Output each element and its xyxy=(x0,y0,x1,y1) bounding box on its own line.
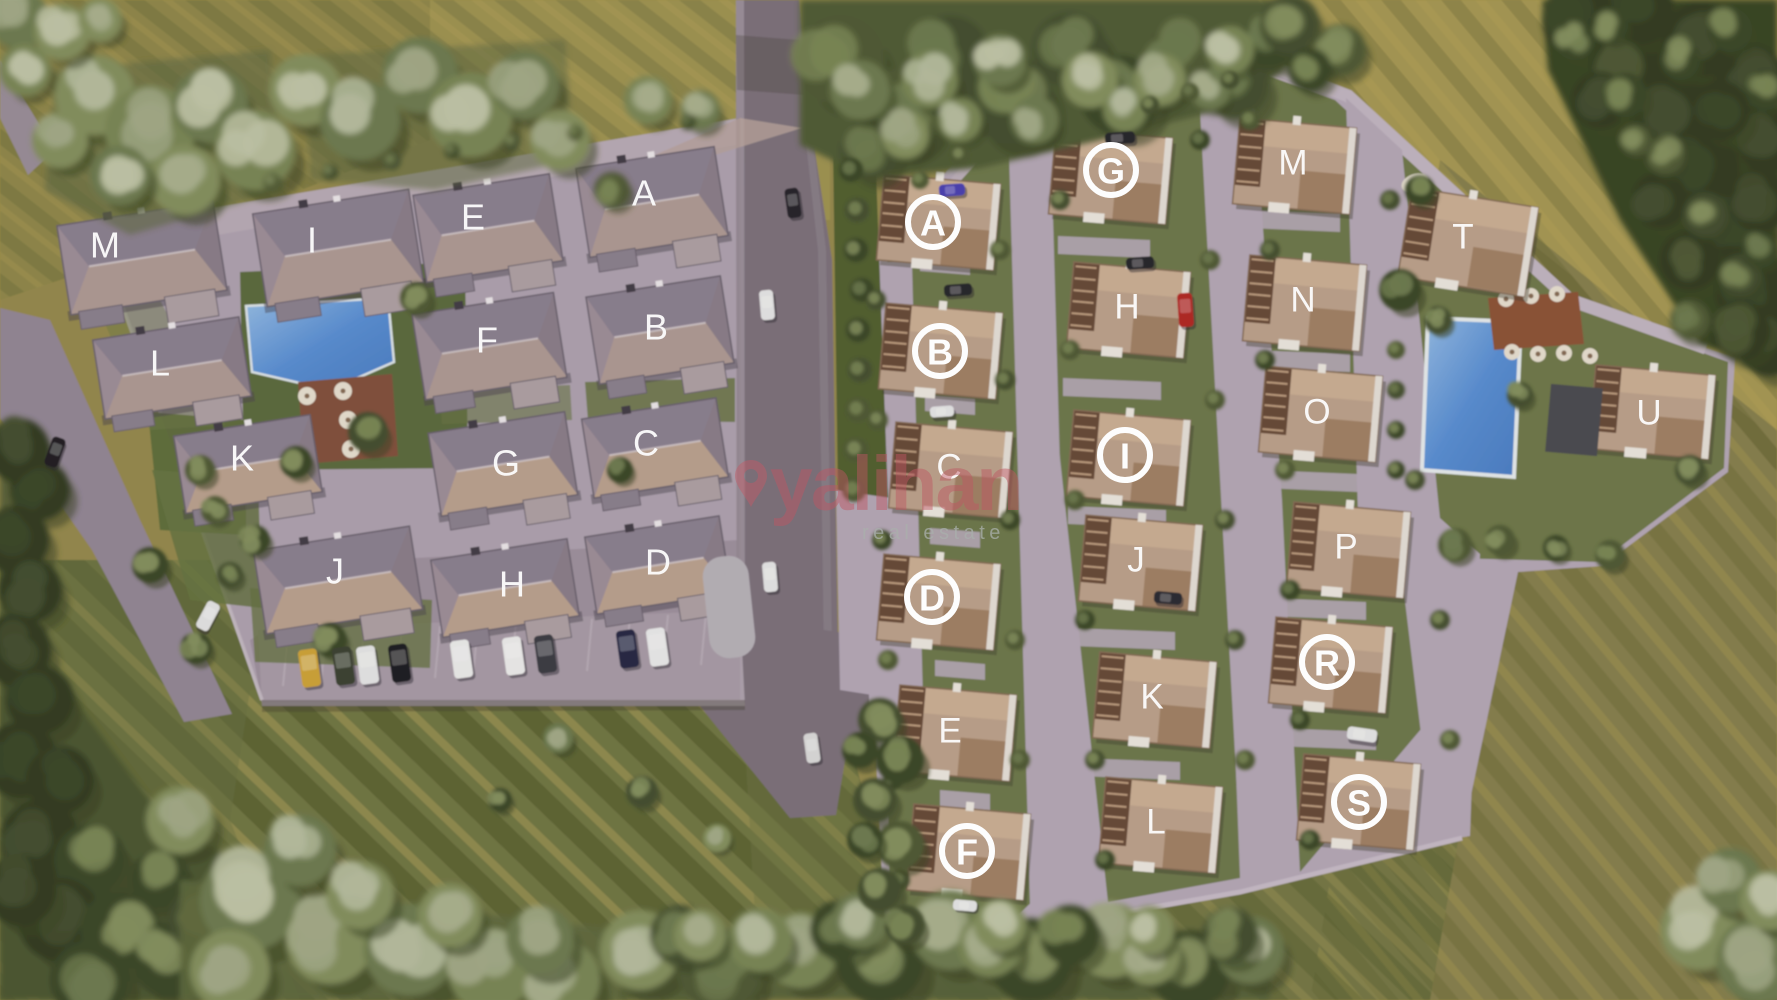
svg-text:H: H xyxy=(1114,288,1139,327)
svg-text:J: J xyxy=(326,551,344,592)
svg-text:D: D xyxy=(919,578,945,619)
svg-text:A: A xyxy=(632,173,656,214)
svg-text:M: M xyxy=(1278,144,1307,183)
svg-text:N: N xyxy=(1290,281,1315,320)
svg-text:C: C xyxy=(633,423,659,464)
svg-text:E: E xyxy=(938,712,961,751)
svg-text:E: E xyxy=(461,197,485,238)
svg-text:B: B xyxy=(927,332,953,373)
svg-text:L: L xyxy=(1146,803,1165,842)
svg-text:G: G xyxy=(492,443,520,484)
svg-text:I: I xyxy=(1120,436,1130,477)
svg-text:P: P xyxy=(1334,528,1357,567)
svg-text:M: M xyxy=(90,225,120,266)
svg-text:real estate: real estate xyxy=(862,522,1005,544)
svg-text:H: H xyxy=(499,564,525,605)
svg-text:L: L xyxy=(150,343,170,384)
svg-text:G: G xyxy=(1097,151,1125,192)
svg-text:J: J xyxy=(1127,541,1145,580)
svg-text:B: B xyxy=(644,307,668,348)
svg-text:U: U xyxy=(1636,394,1661,433)
svg-text:D: D xyxy=(645,542,671,583)
svg-text:O: O xyxy=(1303,393,1330,432)
svg-text:K: K xyxy=(1140,678,1163,717)
svg-text:I: I xyxy=(307,220,317,261)
svg-text:F: F xyxy=(476,320,498,361)
svg-text:R: R xyxy=(1314,643,1340,684)
svg-text:yalihan: yalihan xyxy=(770,441,1021,527)
svg-text:F: F xyxy=(956,832,978,873)
svg-text:K: K xyxy=(230,438,254,479)
svg-text:T: T xyxy=(1452,218,1473,257)
svg-text:S: S xyxy=(1347,783,1371,824)
svg-text:A: A xyxy=(920,203,946,244)
